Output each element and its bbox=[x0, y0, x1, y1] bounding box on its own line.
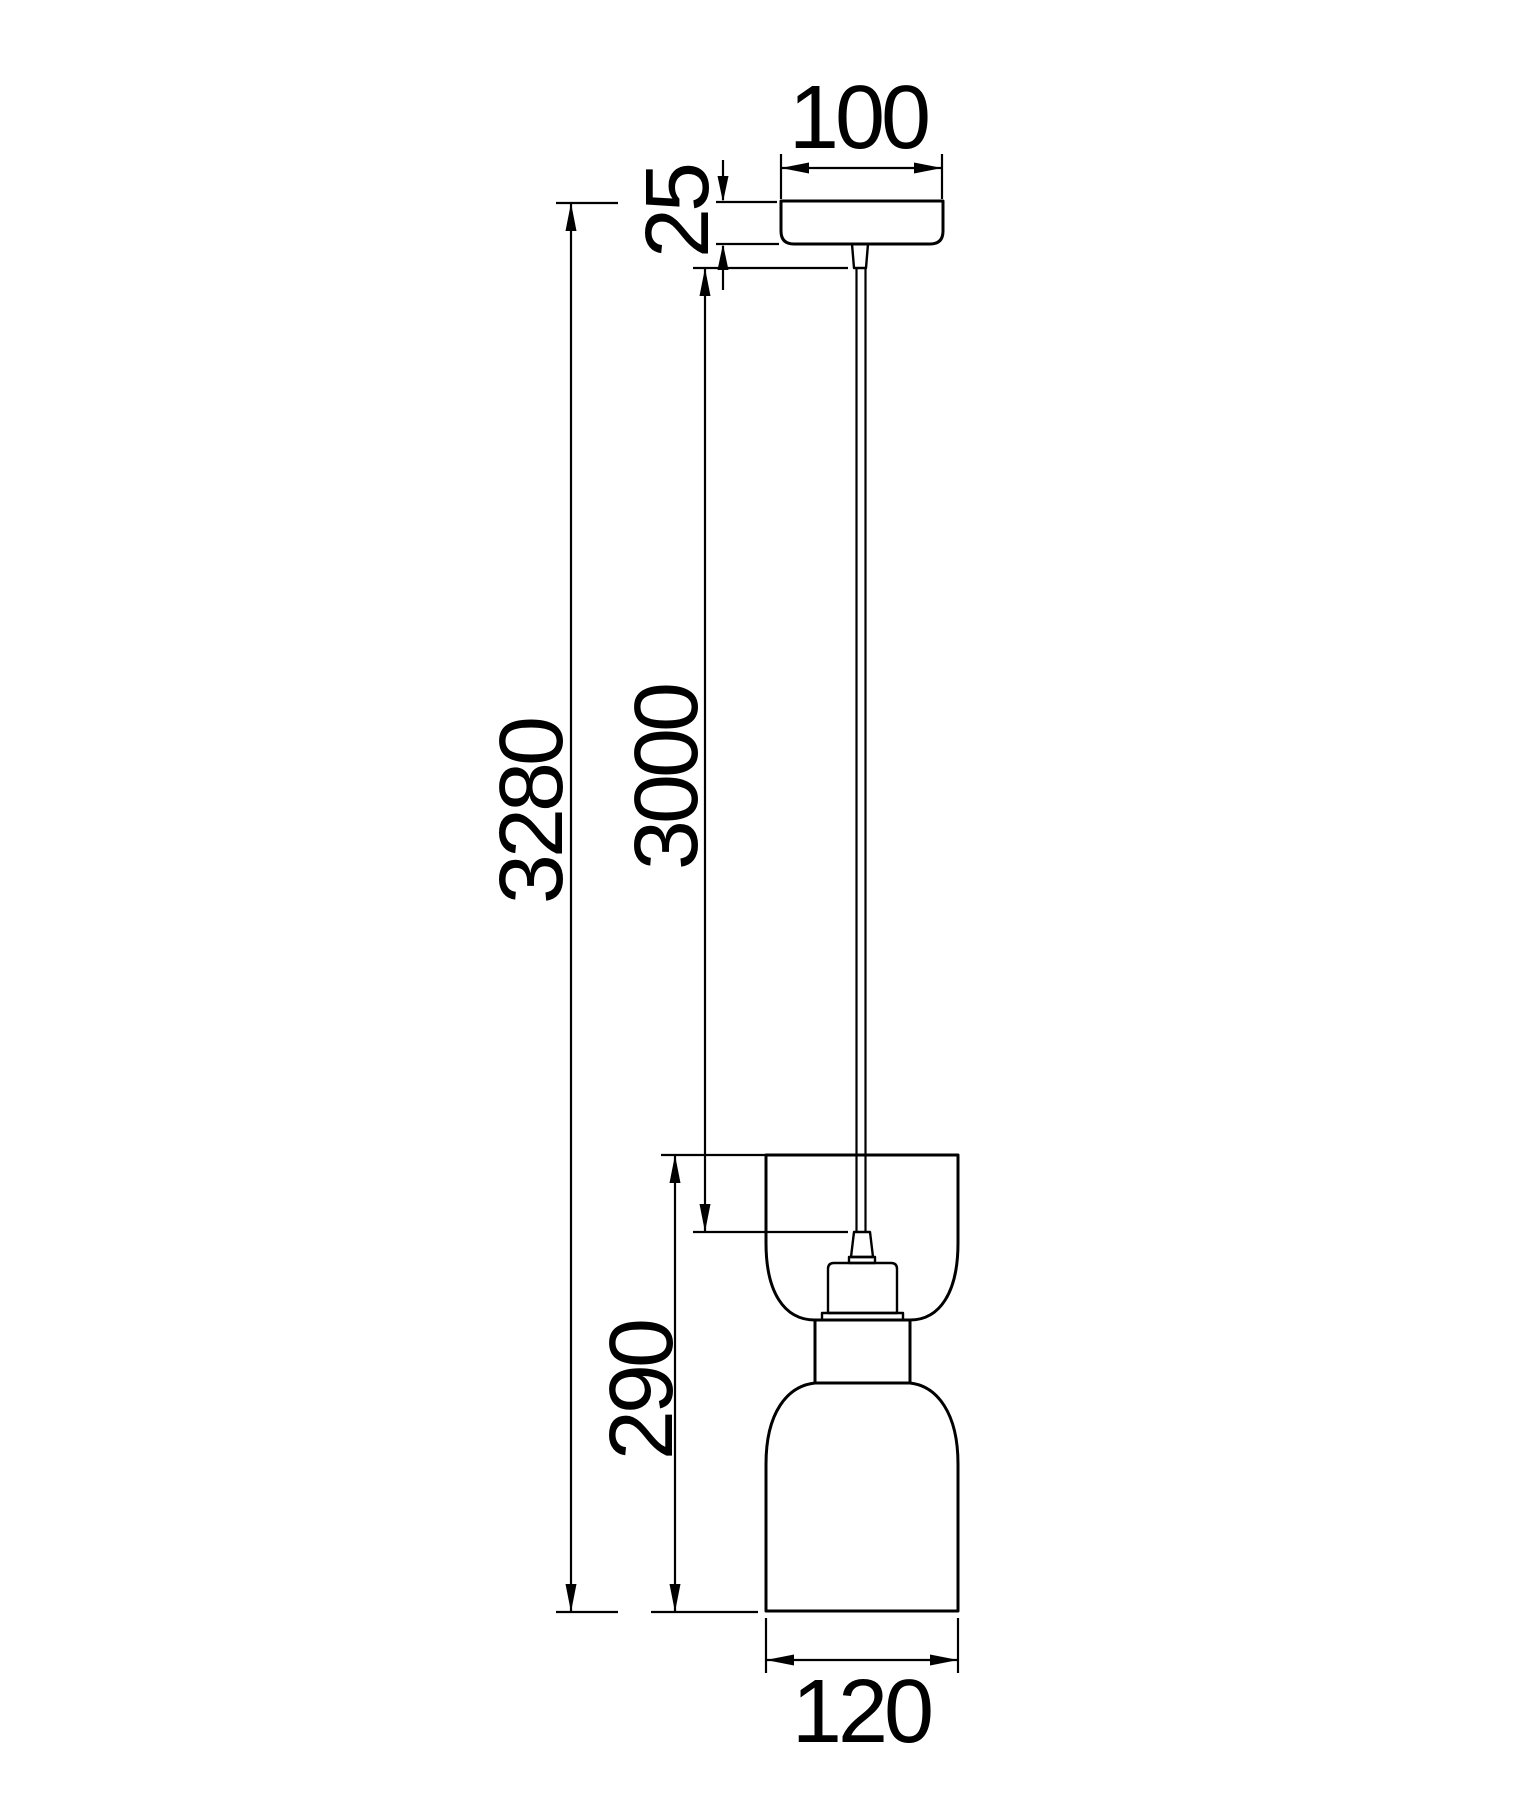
dim-cable-label: 3000 bbox=[617, 685, 717, 870]
dim-overall-arrow-top bbox=[566, 203, 577, 231]
metal-band bbox=[815, 1320, 910, 1383]
dim-canopy-width: 100 bbox=[781, 68, 942, 199]
lamp-socket bbox=[828, 1263, 897, 1313]
pendant-light-dimension-diagram: 100 25 3280 3000 bbox=[0, 0, 1530, 1800]
canopy-outline bbox=[781, 201, 943, 244]
dim-overall-arrow-bottom bbox=[566, 1584, 577, 1612]
fixture bbox=[766, 201, 958, 1611]
dim-canopy-height: 25 bbox=[628, 160, 779, 290]
dim-cable-length: 3000 bbox=[617, 268, 848, 1232]
dim-cable-arrow-top bbox=[700, 268, 711, 296]
drawing-canvas: 100 25 3280 3000 bbox=[0, 0, 1530, 1800]
dim-shade-diameter-arrow-right bbox=[930, 1655, 958, 1666]
dim-cable-arrow-bottom bbox=[700, 1204, 711, 1232]
cord-grip-upper bbox=[852, 244, 868, 268]
dim-canopy-height-label: 25 bbox=[628, 165, 728, 258]
dim-canopy-width-label: 100 bbox=[789, 68, 928, 168]
dim-shade-height-arrow-top bbox=[670, 1155, 681, 1183]
dim-shade-height-label: 290 bbox=[592, 1321, 692, 1460]
dim-shade-height: 290 bbox=[592, 1155, 766, 1612]
shade-bell bbox=[766, 1383, 958, 1611]
shade-bowl bbox=[766, 1155, 958, 1320]
dim-shade-diameter-arrow-left bbox=[766, 1655, 794, 1666]
suspension-cable bbox=[857, 268, 866, 1232]
cord-grip-lower bbox=[851, 1232, 873, 1257]
dim-shade-height-arrow-bottom bbox=[670, 1584, 681, 1612]
dim-shade-diameter-label: 120 bbox=[792, 1662, 931, 1762]
dim-shade-diameter: 120 bbox=[766, 1618, 958, 1762]
dim-overall-label: 3280 bbox=[482, 719, 582, 904]
